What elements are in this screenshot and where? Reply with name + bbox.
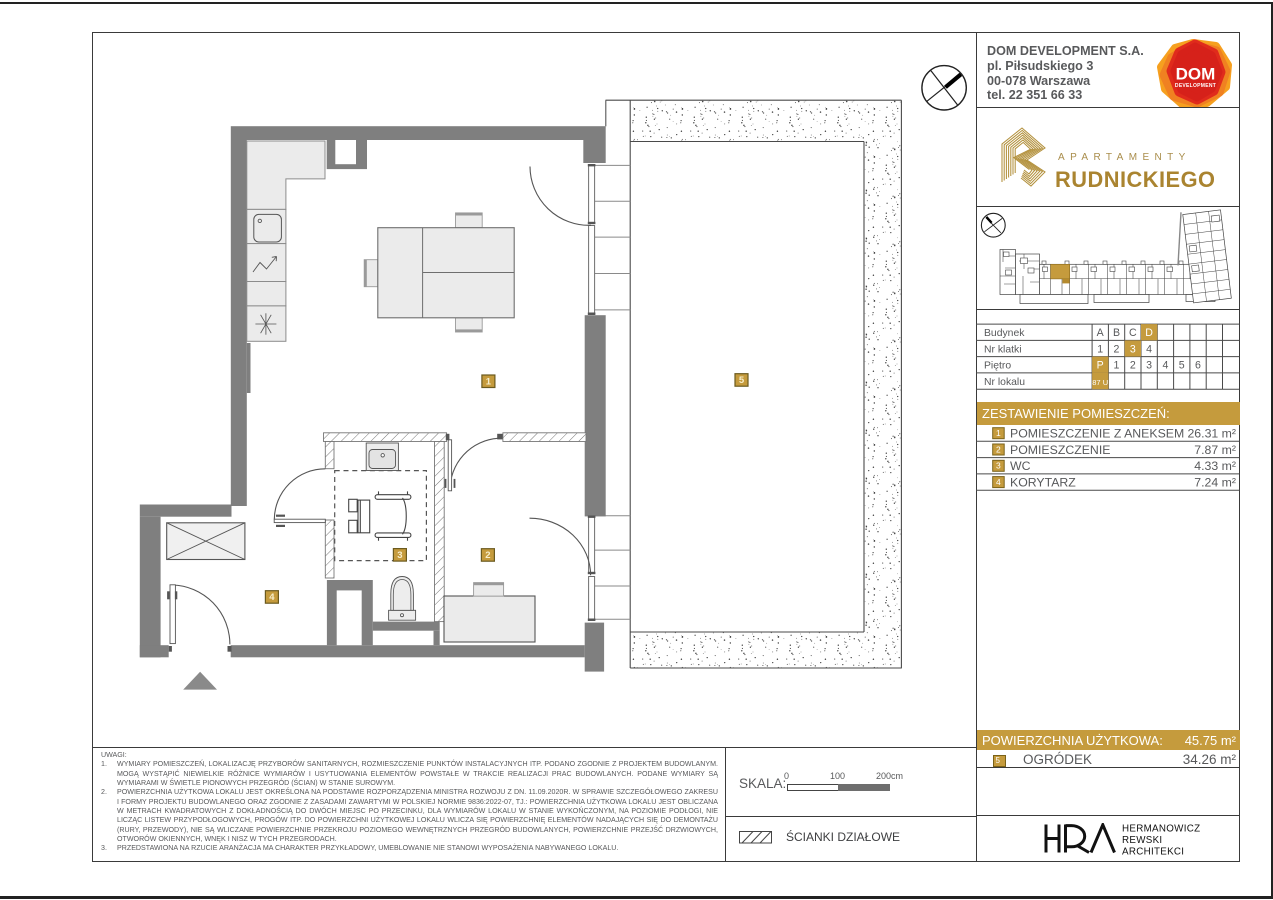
svg-text:5: 5 [739,375,745,386]
svg-text:3: 3 [1130,343,1136,355]
svg-text:DOM: DOM [1176,65,1216,84]
svg-text:ARCHITEKCI: ARCHITEKCI [1122,847,1184,858]
svg-text:1: 1 [1097,343,1103,355]
svg-text:C: C [1129,327,1137,339]
svg-text:1: 1 [486,377,492,388]
svg-text:2: 2 [1130,360,1136,372]
svg-text:7.24 m²: 7.24 m² [1194,476,1236,490]
svg-text:1: 1 [1114,360,1120,372]
svg-text:B: B [1113,327,1120,339]
svg-text:3: 3 [1146,360,1152,372]
svg-text:6: 6 [1195,360,1201,372]
svg-text:3: 3 [397,550,402,561]
svg-text:Piętro: Piętro [984,361,1011,372]
svg-text:RUDNICKIEGO: RUDNICKIEGO [1055,167,1216,192]
svg-text:26.31 m²: 26.31 m² [1187,427,1236,441]
svg-text:4.33 m²: 4.33 m² [1194,459,1236,473]
svg-text:1: 1 [996,428,1001,438]
svg-text:POMIESZCZENIE Z ANEKSEM: POMIESZCZENIE Z ANEKSEM [1010,427,1184,441]
svg-text:A: A [1097,327,1105,339]
svg-text:5: 5 [1179,360,1185,372]
svg-text:7.87 m²: 7.87 m² [1194,443,1236,457]
svg-text:3: 3 [996,461,1001,471]
svg-text:DEVELOPMENT: DEVELOPMENT [1175,83,1216,89]
svg-text:2: 2 [1114,343,1120,355]
svg-text:4: 4 [1162,360,1168,372]
svg-text:4: 4 [269,592,275,603]
svg-text:Nr lokalu: Nr lokalu [984,377,1025,388]
svg-text:4: 4 [1146,343,1152,355]
svg-text:POMIESZCZENIE: POMIESZCZENIE [1010,443,1110,457]
svg-text:2: 2 [996,444,1001,454]
svg-text:Nr klatki: Nr klatki [984,344,1022,355]
svg-text:WC: WC [1010,459,1031,473]
svg-text:APARTAMENTY: APARTAMENTY [1058,152,1191,163]
svg-text:REWSKI: REWSKI [1122,835,1162,846]
svg-text:P: P [1097,360,1104,372]
svg-text:KORYTARZ: KORYTARZ [1010,476,1076,490]
svg-text:Budynek: Budynek [984,328,1025,339]
svg-text:87 U: 87 U [1092,378,1108,387]
svg-text:D: D [1145,327,1153,339]
svg-text:HERMANOWICZ: HERMANOWICZ [1122,824,1200,835]
svg-text:2: 2 [485,550,490,561]
svg-text:4: 4 [996,477,1001,487]
